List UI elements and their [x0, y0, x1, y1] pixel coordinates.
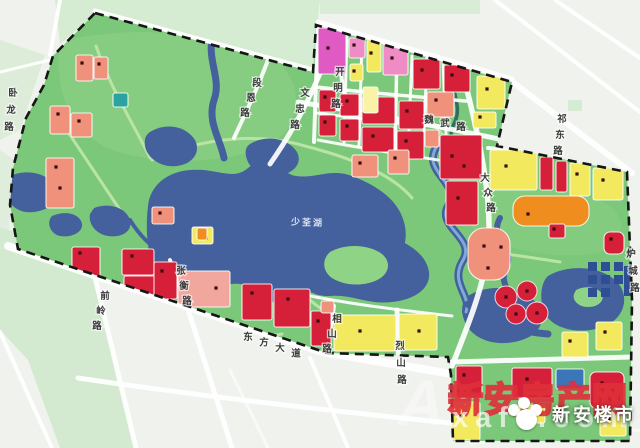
parcel-paleyellow: [363, 87, 378, 113]
parcel-label-dot: [160, 269, 163, 272]
parcel-label-dot: [482, 244, 485, 247]
road-label: 龙: [5, 104, 16, 116]
parcel-label-dot: [97, 62, 100, 65]
parcel-salmon: [321, 301, 334, 313]
parcel-label-dot: [323, 95, 326, 98]
parcel-label-dot: [345, 99, 348, 102]
parcel-salmon: [425, 130, 439, 147]
lake: [49, 213, 82, 236]
parcel-label-dot: [130, 254, 133, 257]
road-label: 路: [397, 374, 407, 386]
pond-grid-cell: [588, 262, 597, 271]
parcel-label-dot: [214, 286, 217, 289]
parcel-salmon: [94, 57, 108, 79]
parcel-label-dot: [462, 164, 465, 167]
island: [324, 246, 388, 285]
road-label: 东: [555, 129, 565, 141]
parcel-yellow: [477, 76, 505, 109]
parcel-label-dot: [80, 61, 83, 64]
parcel-label-dot: [250, 291, 253, 294]
parcel-red: [399, 101, 424, 129]
parcel-label-dot: [345, 124, 348, 127]
parcel-salmon: [50, 106, 70, 134]
pond-grid-cell: [601, 288, 610, 297]
parcel-red: [340, 119, 359, 141]
parcel-label-dot: [404, 139, 407, 142]
parcel-label-dot: [405, 109, 408, 112]
parcel-label-dot: [478, 115, 481, 118]
parcel-label-dot: [352, 43, 355, 46]
parcel-label-dot: [358, 161, 361, 164]
parcel-red: [362, 127, 394, 152]
road-label: 路: [630, 282, 640, 294]
road-label: 路: [331, 98, 341, 110]
parcel-label-dot: [58, 186, 61, 189]
parcel-label-dot: [525, 289, 528, 292]
road-label: 道: [291, 348, 301, 360]
parcel-label-dot: [575, 172, 578, 175]
parcel-label-dot: [369, 51, 372, 54]
road-label: 路: [456, 121, 466, 133]
parcel-label-dot: [609, 237, 612, 240]
road-label: 大: [275, 342, 285, 354]
parcel-label-dot: [417, 329, 420, 332]
parcel-salmon: [71, 113, 92, 137]
parcel-label-dot: [54, 165, 57, 168]
parcel-yellow: [473, 112, 496, 128]
parcel-salmon: [152, 207, 174, 224]
parcel-label-dot: [485, 87, 488, 90]
road-label: 张: [176, 265, 186, 277]
parcel-label-dot: [504, 164, 507, 167]
road-label: 路: [322, 343, 332, 355]
parcel-yellow: [367, 40, 381, 72]
lake-label: 荃: [302, 217, 312, 228]
parcel-red: [549, 224, 565, 238]
parcel-label-dot: [371, 134, 374, 137]
road-label: 相: [332, 313, 342, 325]
parcel-red: [274, 289, 310, 327]
road-label: 大: [480, 172, 490, 184]
road-label: 方: [259, 337, 269, 349]
lake-label: 湖: [313, 217, 323, 228]
road-label: 路: [4, 121, 14, 133]
parcel-orange: [513, 196, 589, 226]
road-label: 山: [396, 357, 406, 369]
parcel-label-dot: [535, 311, 538, 314]
parcel-salmon: [468, 228, 510, 280]
parcel-red: [154, 262, 177, 299]
parcel-red: [444, 65, 470, 92]
pond-grid-cell: [588, 275, 597, 284]
road-label: 城: [628, 265, 638, 277]
parcel-yellow: [562, 332, 588, 357]
road-label: 忠: [295, 103, 305, 115]
site-logo-text: 新安楼市: [552, 401, 636, 427]
parcel-yellow: [596, 322, 622, 350]
parcel-yellow: [350, 64, 363, 81]
parcel-salmon: [352, 155, 378, 177]
parcel-label-dot: [514, 312, 517, 315]
parcel-label-dot: [526, 212, 529, 215]
parcel-red: [319, 115, 336, 136]
parcel-yellow: [334, 315, 396, 351]
planning-map: 卧龙路段恩路文忠路开明路魏武路大众路祁东路前岭路张衡路东方大道相山路烈山路炉城路…: [0, 0, 640, 448]
parcel-label-dot: [316, 319, 319, 322]
parcel-label-dot: [352, 69, 355, 72]
road-label: 魏: [423, 114, 434, 126]
parcel-label-dot: [78, 251, 81, 254]
flower-paw-icon: [508, 396, 546, 432]
parcel-label-dot: [450, 154, 453, 157]
parcel-red: [446, 181, 478, 225]
parcel-red: [413, 59, 440, 89]
parcel-salmon: [388, 150, 409, 174]
parcel-label-dot: [504, 295, 507, 298]
parcel-red: [556, 161, 567, 192]
parcel-red: [540, 157, 553, 190]
parcel-label-dot: [499, 245, 502, 248]
road-label: 东: [243, 331, 253, 343]
parcel-yellow: [593, 168, 623, 200]
parcel-label-dot: [568, 339, 571, 342]
road-label: 众: [483, 187, 493, 199]
parcel-label-dot: [323, 120, 326, 123]
pond-grid-cell: [601, 275, 610, 284]
parcel-yellow: [490, 150, 537, 190]
road-label: 开: [335, 67, 345, 78]
road-label: 路: [290, 119, 300, 131]
pond-grid-cell: [588, 288, 597, 297]
green-patch: [320, 0, 480, 14]
road-label: 文: [299, 87, 310, 99]
parcel-label-dot: [326, 46, 329, 49]
road-label: 路: [553, 145, 563, 157]
lake-label: 少: [290, 216, 301, 227]
parcel-label-dot: [552, 227, 555, 230]
road-label: 烈: [395, 340, 405, 352]
parcel-red: [340, 94, 359, 116]
pond-grid-cell: [614, 262, 623, 271]
site-logo: 新安楼市: [508, 396, 636, 432]
parcel-label-dot: [358, 329, 361, 332]
pond-grid-cell: [601, 262, 610, 271]
parcel-label-dot: [601, 178, 604, 181]
road-label: 明: [333, 83, 343, 94]
road-label: 山: [327, 328, 337, 340]
road-label: 衡: [179, 280, 189, 292]
parcel-label-dot: [486, 266, 489, 269]
parcel-salmon: [427, 92, 454, 117]
parcel-label-dot: [390, 56, 393, 59]
parcel-red: [242, 284, 272, 320]
parcel-orange: [197, 228, 207, 240]
parcel-yellow: [570, 163, 590, 196]
road-label: 段: [252, 77, 262, 89]
parcel-label-dot: [56, 112, 59, 115]
parcel-teal: [113, 93, 128, 107]
green-patch: [568, 100, 582, 111]
parcel-pink: [349, 38, 365, 58]
parcel-red: [440, 135, 482, 179]
pond-grid-cell: [614, 275, 623, 284]
parcel-red: [604, 232, 624, 254]
parcel-label-dot: [434, 98, 437, 101]
road-label: 祁: [557, 113, 567, 125]
parcel-label-dot: [393, 156, 396, 159]
parcel-label-dot: [158, 211, 161, 214]
road-label: 路: [240, 107, 250, 119]
road-label: 路: [486, 202, 496, 214]
road-label: 炉: [626, 248, 636, 260]
parcel-label-dot: [77, 119, 80, 122]
parcel-label-dot: [456, 196, 459, 199]
parcel-label-dot: [420, 68, 423, 71]
parcel-red: [122, 249, 154, 275]
road-label: 武: [440, 118, 450, 130]
road-label: 岭: [96, 305, 106, 317]
parcel-label-dot: [450, 73, 453, 76]
road-label: 前: [100, 290, 110, 302]
road-label: 卧: [8, 87, 18, 99]
road-label: 路: [92, 320, 102, 332]
parcel-salmon: [76, 55, 93, 81]
road-label: 恩: [246, 93, 256, 104]
parcel-label-dot: [603, 330, 606, 333]
parcel-label-dot: [286, 297, 289, 300]
road-label: 路: [182, 295, 192, 307]
parcel-salmon: [46, 158, 74, 208]
